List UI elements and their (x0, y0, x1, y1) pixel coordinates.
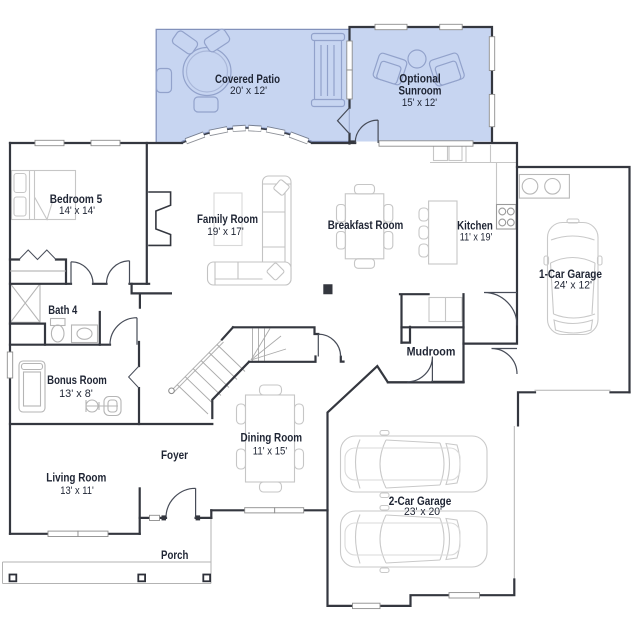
svg-text:Sunroom: Sunroom (399, 84, 442, 98)
svg-text:Bonus Room: Bonus Room (47, 373, 107, 387)
svg-text:24' x 12': 24' x 12' (554, 280, 592, 292)
svg-text:13' x 8': 13' x 8' (59, 388, 93, 400)
svg-text:Foyer: Foyer (161, 448, 188, 462)
svg-text:14' x 14': 14' x 14' (59, 205, 95, 217)
svg-text:Living Room: Living Room (46, 470, 106, 484)
svg-text:Family Room: Family Room (197, 212, 258, 226)
svg-text:20' x 12': 20' x 12' (230, 85, 267, 97)
svg-text:Dining Room: Dining Room (241, 430, 303, 444)
svg-text:13' x 11': 13' x 11' (60, 485, 94, 497)
svg-text:11' x 15': 11' x 15' (253, 446, 287, 458)
svg-text:19' x 17': 19' x 17' (207, 226, 244, 238)
svg-text:Breakfast Room: Breakfast Room (328, 218, 404, 232)
svg-text:Bath 4: Bath 4 (48, 303, 77, 317)
svg-text:Covered Patio: Covered Patio (215, 72, 280, 86)
svg-text:11' x 19': 11' x 19' (460, 232, 493, 244)
svg-text:Mudroom: Mudroom (407, 345, 456, 359)
svg-text:15' x 12': 15' x 12' (402, 97, 437, 109)
svg-text:Porch: Porch (161, 548, 188, 562)
svg-text:23' x 20': 23' x 20' (404, 506, 442, 518)
svg-text:Kitchen: Kitchen (457, 219, 493, 233)
